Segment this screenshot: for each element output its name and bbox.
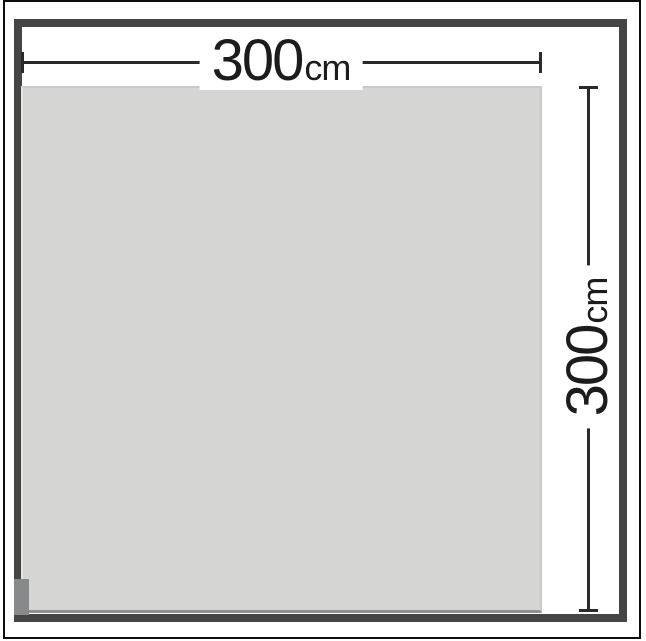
height-value: 300 [559, 326, 617, 417]
grey-square-panel [21, 86, 542, 613]
width-dimension-tick-right [539, 52, 542, 73]
height-unit: cm [577, 278, 613, 324]
dimension-diagram-canvas: 300 cm 300 cm [0, 0, 646, 641]
panel-bottom-left-notch [14, 579, 29, 615]
width-unit: cm [304, 50, 350, 86]
height-dimension-tick-bottom [579, 609, 598, 612]
width-dimension-label: 300 cm [200, 32, 363, 90]
width-value: 300 [212, 32, 303, 90]
height-dimension-label: 300 cm [559, 266, 617, 429]
